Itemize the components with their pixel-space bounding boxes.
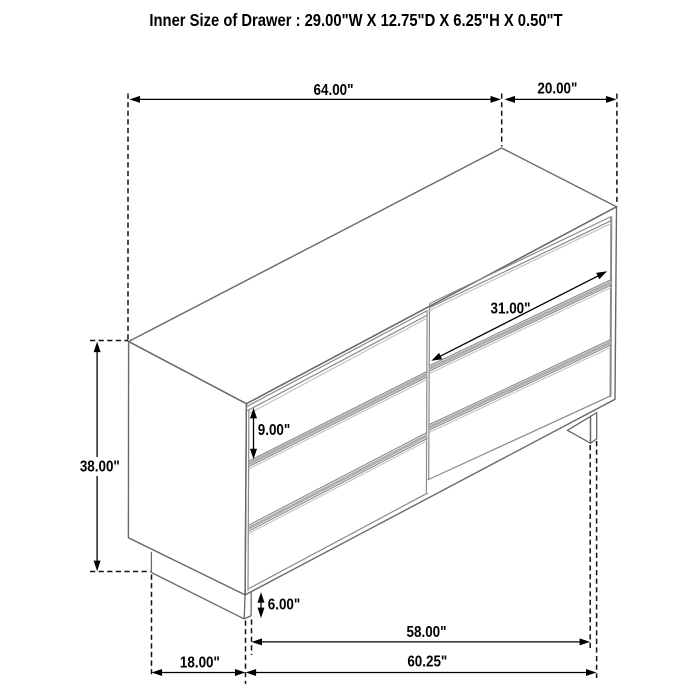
svg-text:64.00": 64.00": [314, 82, 354, 99]
svg-text:20.00": 20.00": [537, 81, 577, 98]
svg-text:18.00": 18.00": [180, 655, 220, 672]
svg-text:6.00": 6.00": [268, 597, 301, 614]
svg-text:58.00": 58.00": [407, 624, 447, 641]
svg-text:31.00": 31.00": [491, 301, 531, 318]
svg-text:Inner Size of Drawer : 29.00"W: Inner Size of Drawer : 29.00"W X 12.75"D…: [149, 11, 562, 30]
svg-text:38.00": 38.00": [80, 459, 120, 476]
svg-text:60.25": 60.25": [407, 654, 447, 671]
svg-text:9.00": 9.00": [258, 422, 291, 439]
